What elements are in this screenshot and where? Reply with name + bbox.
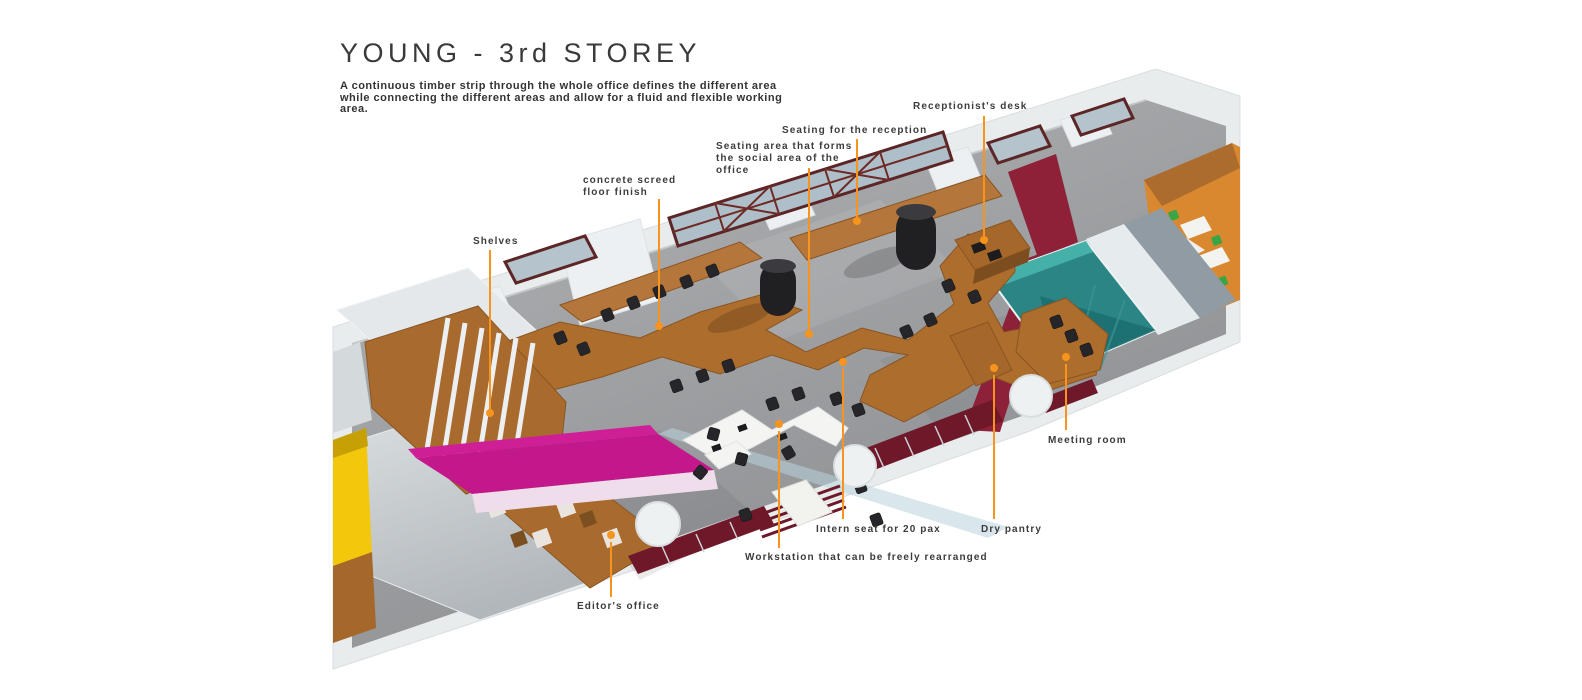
leader-dot-seating-reception xyxy=(853,217,861,225)
leader-dot-concrete-screed xyxy=(655,322,663,330)
annotation-seating-social: Seating area that forms the social area … xyxy=(716,141,866,177)
annotation-intern-seat: Intern seat for 20 pax xyxy=(816,524,941,535)
leader-dot-dry-pantry xyxy=(990,364,998,372)
leader-dot-workstation xyxy=(775,420,783,428)
annotation-shelves: Shelves xyxy=(473,236,519,247)
annotation-seating-reception: Seating for the reception xyxy=(782,125,927,136)
leader-line-shelves xyxy=(489,250,491,410)
annotation-editors-office: Editor's office xyxy=(577,601,660,612)
leader-line-workstation xyxy=(778,431,780,548)
leader-dot-receptionist-desk xyxy=(980,236,988,244)
white-column xyxy=(834,445,876,487)
annotation-dry-pantry: Dry pantry xyxy=(981,524,1042,535)
leader-line-concrete-screed xyxy=(658,199,660,323)
annotation-workstation: Workstation that can be freely rearrange… xyxy=(745,552,988,563)
leader-dot-editors-office xyxy=(607,531,615,539)
leader-line-seating-social xyxy=(808,168,810,331)
floorplan-render xyxy=(0,0,1582,700)
annotation-concrete-screed: concrete screed floor finish xyxy=(583,175,703,199)
leader-dot-intern-seat xyxy=(839,358,847,366)
leader-dot-seating-social xyxy=(805,330,813,338)
leader-line-dry-pantry xyxy=(993,375,995,519)
leader-line-meeting-room xyxy=(1065,364,1067,430)
white-column xyxy=(1010,375,1052,417)
white-column xyxy=(636,502,680,546)
leader-line-intern-seat xyxy=(842,369,844,519)
leader-dot-meeting-room xyxy=(1062,353,1070,361)
leader-line-editors-office xyxy=(610,542,612,597)
annotation-meeting-room: Meeting room xyxy=(1048,435,1127,446)
presentation-canvas: YOUNG - 3rd STOREY A continuous timber s… xyxy=(0,0,1582,700)
leader-line-receptionist-desk xyxy=(983,116,985,236)
annotation-receptionist-desk: Receptionist's desk xyxy=(913,101,1027,112)
leader-dot-shelves xyxy=(486,409,494,417)
